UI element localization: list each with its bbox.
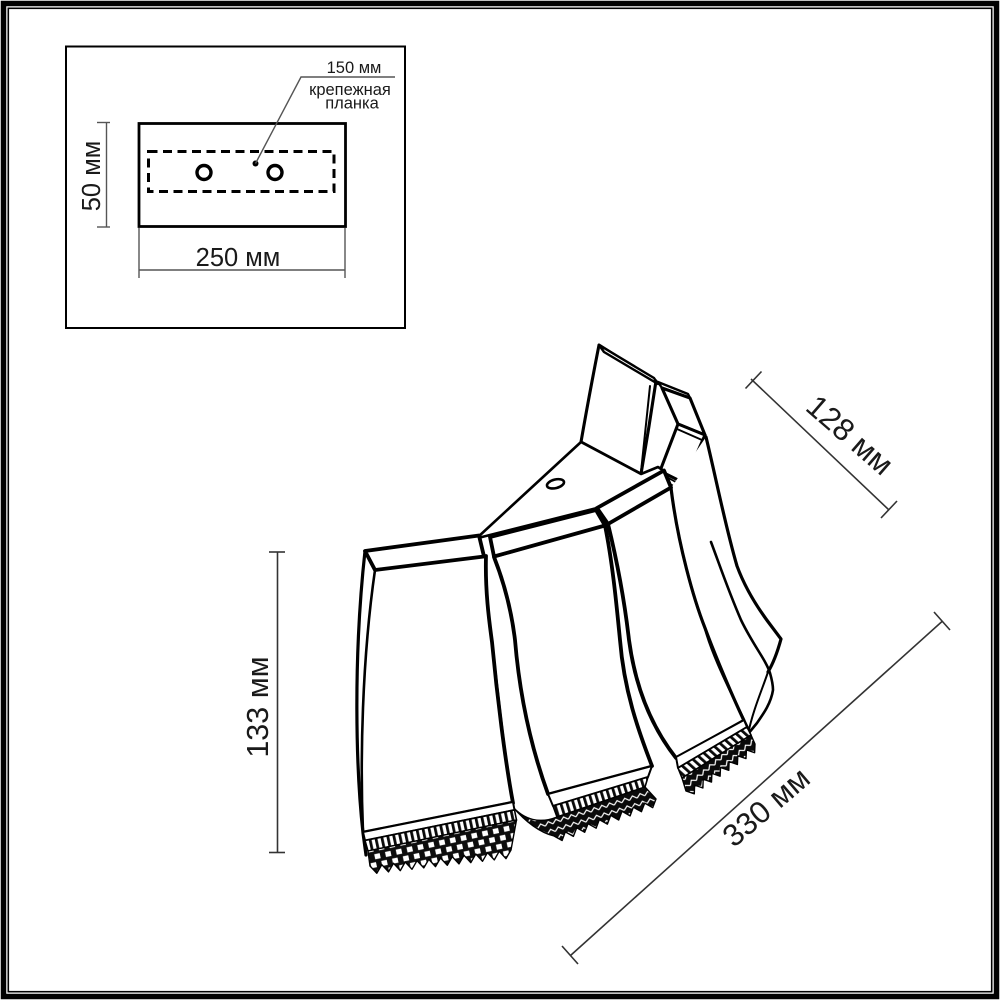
svg-text:50 мм: 50 мм (78, 141, 106, 212)
svg-text:250 мм: 250 мм (196, 244, 281, 272)
svg-text:планка: планка (325, 95, 379, 113)
svg-text:133 мм: 133 мм (241, 656, 275, 757)
svg-text:150 мм: 150 мм (327, 59, 382, 77)
